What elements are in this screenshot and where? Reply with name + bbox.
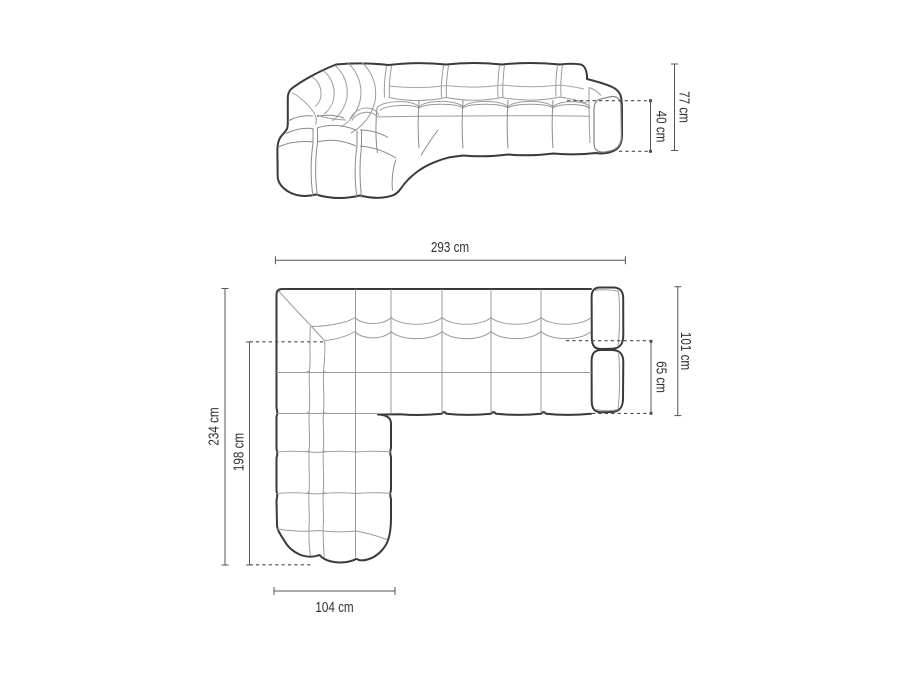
svg-text:234 cm: 234 cm xyxy=(205,407,222,445)
svg-text:293 cm: 293 cm xyxy=(431,239,469,256)
svg-text:101 cm: 101 cm xyxy=(678,332,695,370)
svg-text:77 cm: 77 cm xyxy=(676,91,693,123)
svg-text:198 cm: 198 cm xyxy=(230,433,247,471)
svg-text:40 cm: 40 cm xyxy=(653,111,670,143)
svg-text:104 cm: 104 cm xyxy=(315,599,353,616)
svg-text:65 cm: 65 cm xyxy=(653,361,670,393)
